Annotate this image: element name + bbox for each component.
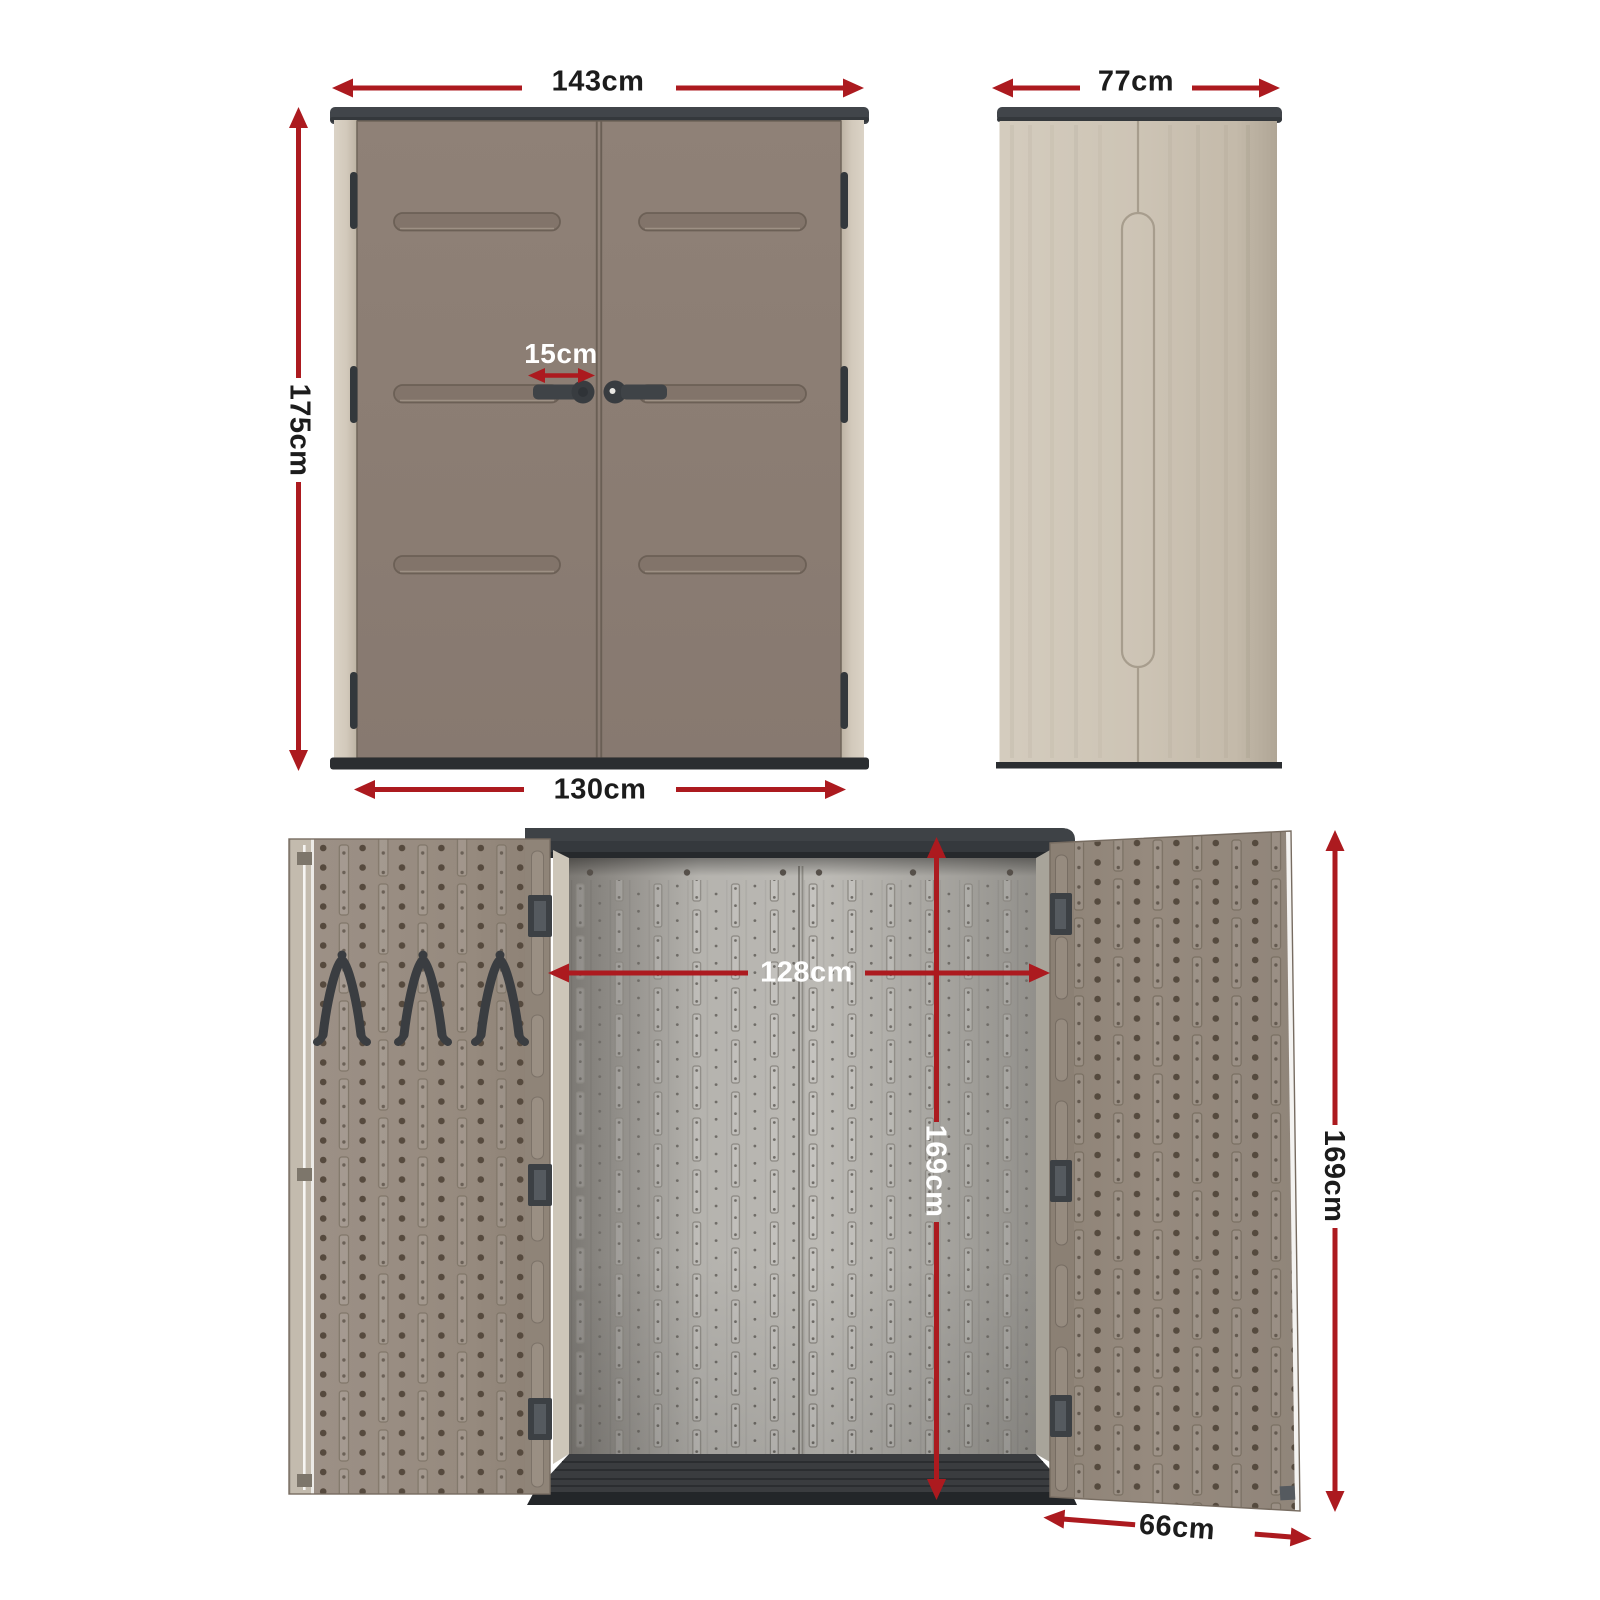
svg-text:143cm: 143cm bbox=[552, 66, 645, 98]
svg-text:66cm: 66cm bbox=[1138, 1509, 1216, 1547]
svg-text:130cm: 130cm bbox=[554, 774, 647, 806]
svg-text:169cm: 169cm bbox=[1318, 1130, 1350, 1223]
svg-text:128cm: 128cm bbox=[760, 957, 853, 989]
svg-text:169cm: 169cm bbox=[920, 1125, 952, 1218]
svg-text:175cm: 175cm bbox=[284, 384, 316, 477]
svg-text:77cm: 77cm bbox=[1098, 66, 1174, 98]
svg-text:15cm: 15cm bbox=[524, 338, 598, 369]
